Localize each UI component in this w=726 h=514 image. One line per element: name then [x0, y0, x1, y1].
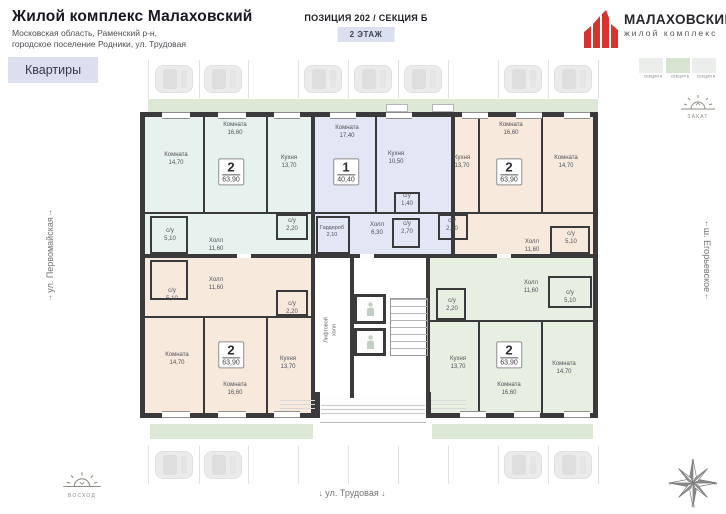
legend-label-v: СЕКЦИЯ В — [697, 75, 711, 79]
room-name: Холл — [370, 222, 384, 228]
room-label: Кухня13,70 — [281, 155, 297, 171]
room-label: Комната14,70 — [164, 152, 188, 168]
room-label: Комната16,60 — [497, 382, 521, 398]
rooms-count: 2 — [222, 160, 240, 175]
room-name: Комната — [335, 125, 359, 131]
room-area: 14,70 — [558, 163, 573, 169]
parking-spot — [198, 446, 249, 484]
wall — [428, 320, 593, 322]
balcony — [432, 104, 454, 112]
parking-spot — [298, 60, 349, 98]
room-area: 11,60 — [209, 285, 224, 291]
total-area: 63,90 — [500, 176, 518, 184]
room-area: 10,50 — [388, 159, 403, 165]
room-area: 2,20 — [446, 226, 458, 232]
room-area: 5,10 — [164, 236, 176, 242]
parking-spot — [448, 60, 499, 98]
room-area: 2,20 — [446, 306, 458, 312]
room-area: 5,10 — [166, 296, 178, 302]
room-label: Комната14,70 — [552, 361, 576, 377]
room-area: 2,10 — [327, 232, 338, 238]
parking-spot — [298, 446, 349, 484]
lawn-strip-bottom-left — [150, 424, 313, 439]
window — [218, 411, 246, 418]
apartment-badge[interactable]: 263,90 — [218, 158, 244, 185]
legend-section-v[interactable] — [692, 58, 716, 73]
room-name: с/у — [567, 231, 575, 237]
entrance-porch — [320, 398, 426, 423]
room-area: 13,70 — [280, 364, 295, 370]
parking-spot — [148, 60, 200, 98]
person-icon — [366, 302, 375, 316]
room-area: 16,60 — [503, 130, 518, 136]
room-area: 11,60 — [524, 288, 539, 294]
room-area: 5,10 — [564, 298, 576, 304]
wall — [541, 117, 543, 214]
parking-spot — [548, 446, 599, 484]
sunrise-label: ВОСХОД — [62, 493, 102, 499]
room-label: Комната16,60 — [223, 122, 247, 138]
room-label: с/у2,20 — [286, 218, 298, 234]
parking-row-bottom — [148, 446, 598, 484]
window — [386, 112, 412, 119]
car-icon — [555, 66, 591, 92]
ramp-line — [280, 404, 315, 405]
room-name: с/у — [403, 193, 411, 199]
rooms-count: 2 — [500, 160, 518, 175]
room-name: Комната — [223, 382, 247, 388]
compass-rose-icon: С В Ю З — [668, 458, 718, 508]
apartment-badge[interactable]: 263,90 — [496, 341, 522, 368]
rooms-count: 2 — [222, 343, 240, 358]
street-left-name: ул. Первомайская — [45, 217, 55, 292]
total-area: 40,40 — [337, 176, 355, 184]
street-left-arrow-1: ↑ — [49, 293, 53, 302]
sunrise-icon — [62, 470, 102, 492]
room-name: Кухня — [280, 356, 296, 362]
legend-section-a[interactable] — [639, 58, 663, 73]
room-name: с/у — [566, 290, 574, 296]
room-area: 1,40 — [401, 201, 413, 207]
room-label: Кухня10,50 — [388, 151, 404, 167]
room-label: Холл11,60 — [209, 238, 224, 254]
room-name: Комната — [223, 122, 247, 128]
room-area: 16,60 — [227, 390, 242, 396]
room-label: с/у2,70 — [401, 221, 413, 237]
room-name: с/у — [166, 228, 174, 234]
room-label: Кухня13,70 — [454, 155, 470, 171]
rooms-count: 2 — [500, 343, 518, 358]
window — [274, 112, 300, 119]
legend-label-a: СЕКЦИЯ А — [644, 75, 658, 79]
elevator-cab — [354, 328, 386, 356]
street-right-arrow-1: ↑ — [705, 219, 709, 228]
sunset-label: ЗАКАТ — [680, 114, 716, 120]
room-name: Комната — [497, 382, 521, 388]
car-icon — [156, 452, 192, 478]
room-area: 16,60 — [501, 390, 516, 396]
parking-spot — [348, 60, 399, 98]
wall — [541, 322, 543, 413]
room-area: 13,70 — [281, 163, 296, 169]
room-label: с/у2,20 — [446, 298, 458, 314]
address-line-1: Московская область, Раменский р-н, — [12, 28, 157, 38]
room-label: с/у2,20 — [286, 301, 298, 317]
wall — [311, 258, 315, 413]
parking-spot — [398, 446, 449, 484]
parking-row-top — [148, 60, 598, 98]
room-label: Гардероб2,10 — [320, 225, 344, 239]
entrance-step — [321, 405, 425, 406]
room-label: Комната16,60 — [499, 122, 523, 138]
room-label: Кухня13,70 — [450, 356, 466, 372]
wall — [478, 117, 480, 214]
parking-spot — [248, 446, 299, 484]
room-area: 13,70 — [450, 364, 465, 370]
tab-apartments[interactable]: Квартиры — [8, 57, 98, 83]
street-right-arrow-2: ↑ — [705, 292, 709, 301]
total-area: 63,90 — [222, 176, 240, 184]
ramp-line — [280, 408, 315, 409]
elevator-cab — [354, 294, 386, 324]
street-bottom-trudovaya: ↓ ул. Трудовая ↓ — [319, 488, 386, 498]
car-icon — [305, 66, 341, 92]
room-name: Комната — [165, 352, 189, 358]
room-name: с/у — [448, 218, 456, 224]
room-area: 16,60 — [227, 130, 242, 136]
wall — [266, 318, 268, 413]
ramp-line — [280, 400, 315, 401]
ramp-line — [431, 400, 466, 401]
room-name: Кухня — [450, 356, 466, 362]
window — [564, 411, 590, 418]
room-area: 2,20 — [286, 226, 298, 232]
window — [274, 411, 300, 418]
room-label: с/у5,10 — [166, 288, 178, 304]
parking-spot — [248, 60, 299, 98]
room-label: с/у2,20 — [446, 218, 458, 234]
street-left-pervomayskaya: ↑ ул. Первомайская ↑ — [45, 211, 55, 300]
room-area: 14,70 — [169, 360, 184, 366]
room-area: 13,70 — [454, 163, 469, 169]
parking-spot — [498, 446, 549, 484]
room-label: Кухня13,70 — [280, 356, 296, 372]
legend-section-b-active[interactable] — [666, 58, 690, 73]
position-section-label: ПОЗИЦИЯ 202 / СЕКЦИЯ Б — [304, 13, 427, 23]
room-name: с/у — [448, 298, 456, 304]
compass-south-label: Ю — [692, 505, 696, 508]
wall — [375, 117, 377, 214]
person-icon — [366, 335, 375, 349]
window — [460, 411, 486, 418]
apartment-badge[interactable]: 263,90 — [496, 158, 522, 185]
car-icon — [156, 66, 192, 92]
room-label: Холл6,30 — [370, 222, 384, 238]
room-area: 11,60 — [525, 247, 540, 253]
room-name: Комната — [499, 122, 523, 128]
room-label: с/у5,10 — [164, 228, 176, 244]
room-name: Кухня — [281, 155, 297, 161]
street-bottom-name: ул. Трудовая — [325, 488, 378, 498]
room-area: 2,70 — [401, 229, 413, 235]
room-label: с/у1,40 — [401, 193, 413, 209]
room-name: Кухня — [454, 155, 470, 161]
street-right-egoryevskoe: ↑ ш. Егорьевское ↑ — [702, 221, 712, 298]
logo-tagline: жилой комплекс — [624, 28, 717, 38]
room-name: Комната — [554, 155, 578, 161]
room-name: с/у — [168, 288, 176, 294]
car-icon — [505, 66, 541, 92]
room-area: 17,40 — [339, 133, 354, 139]
street-left-arrow-2: ↑ — [49, 208, 53, 217]
wall — [426, 392, 431, 414]
car-icon — [355, 66, 391, 92]
room-name: Кухня — [388, 151, 404, 157]
parking-spot — [348, 446, 399, 484]
building-outline — [140, 112, 598, 418]
logo-name: МАЛАХОВСКИЙ — [624, 12, 726, 27]
car-icon — [505, 452, 541, 478]
car-icon — [555, 452, 591, 478]
room-name: Комната — [552, 361, 576, 367]
wall — [315, 392, 320, 414]
wall — [478, 322, 480, 413]
room-area: 14,70 — [556, 369, 571, 375]
car-icon — [205, 452, 241, 478]
window — [462, 112, 488, 119]
window — [564, 112, 590, 119]
street-bottom-arrow-2: ↓ — [381, 489, 385, 498]
room-label: Комната17,40 — [335, 125, 359, 141]
logo-mark — [584, 10, 618, 48]
room-label: с/у5,10 — [565, 231, 577, 247]
room-name: с/у — [288, 218, 296, 224]
apartment-badge[interactable]: 263,90 — [218, 341, 244, 368]
room-name: с/у — [288, 301, 296, 307]
sunset-icon — [680, 92, 716, 114]
elevator-hall-label: Лифтовой холл — [323, 317, 338, 343]
window — [218, 112, 246, 119]
room-name: Холл — [209, 277, 223, 283]
parking-spot — [198, 60, 249, 98]
room-name: с/у — [403, 221, 411, 227]
street-bottom-arrow-1: ↓ — [319, 489, 323, 498]
compass-east-label: В — [714, 482, 717, 486]
window — [162, 411, 190, 418]
address-line-2: городское поселение Родники, ул. Трудова… — [12, 39, 186, 49]
door-opening — [497, 254, 511, 258]
total-area: 63,90 — [500, 359, 518, 367]
room-name: Комната — [164, 152, 188, 158]
door-opening — [360, 254, 374, 258]
street-right-name: ш. Егорьевское — [702, 228, 712, 292]
room-name: Гардероб — [320, 225, 344, 231]
room-area: 2,20 — [286, 309, 298, 315]
parking-spot — [398, 60, 449, 98]
room-area: 6,30 — [371, 230, 383, 236]
room-label: Комната14,70 — [165, 352, 189, 368]
window — [516, 112, 542, 119]
lawn-strip-bottom-right — [432, 424, 593, 439]
door-opening — [237, 254, 251, 258]
floor-badge[interactable]: 2 ЭТАЖ — [338, 27, 395, 42]
entrance-step — [321, 409, 425, 410]
legend-label-b: СЕКЦИЯ Б — [671, 75, 685, 79]
room-name: Холл — [524, 280, 538, 286]
parking-spot — [448, 446, 499, 484]
wall — [266, 117, 268, 214]
wall — [453, 212, 593, 214]
room-area: 5,10 — [565, 239, 577, 245]
room-label: Комната16,60 — [223, 382, 247, 398]
wall — [203, 117, 205, 214]
wall — [311, 117, 315, 256]
room-label: Холл11,60 — [524, 280, 539, 296]
balcony — [386, 104, 408, 112]
room-label: Комната14,70 — [554, 155, 578, 171]
stairs — [390, 298, 428, 356]
parking-spot — [148, 446, 200, 484]
page-title: Жилой комплекс Малаховский — [12, 8, 253, 26]
window — [162, 112, 190, 119]
wall — [313, 212, 453, 214]
ramp-line — [431, 408, 466, 409]
apartment-badge[interactable]: 140,40 — [333, 158, 359, 185]
car-icon — [405, 66, 441, 92]
elevator-hall-label-line2: холл — [331, 324, 337, 336]
window — [330, 112, 356, 119]
rooms-count: 1 — [337, 160, 355, 175]
room-area: 11,60 — [209, 246, 224, 252]
room-label: Холл11,60 — [525, 239, 540, 255]
room-area: 14,70 — [168, 160, 183, 166]
window — [514, 411, 540, 418]
entrance-step — [321, 413, 425, 414]
parking-spot — [498, 60, 549, 98]
room-name: Холл — [525, 239, 539, 245]
room-name: Холл — [209, 238, 223, 244]
total-area: 63,90 — [222, 359, 240, 367]
room-label: Холл11,60 — [209, 277, 224, 293]
car-icon — [205, 66, 241, 92]
parking-spot — [548, 60, 599, 98]
wall — [203, 318, 205, 413]
logo-buildings-icon — [584, 10, 618, 48]
room-label: с/у5,10 — [564, 290, 576, 306]
elevator-hall-label-line1: Лифтовой — [323, 317, 329, 343]
compass-north-label: С — [692, 459, 695, 463]
ramp-line — [431, 404, 466, 405]
